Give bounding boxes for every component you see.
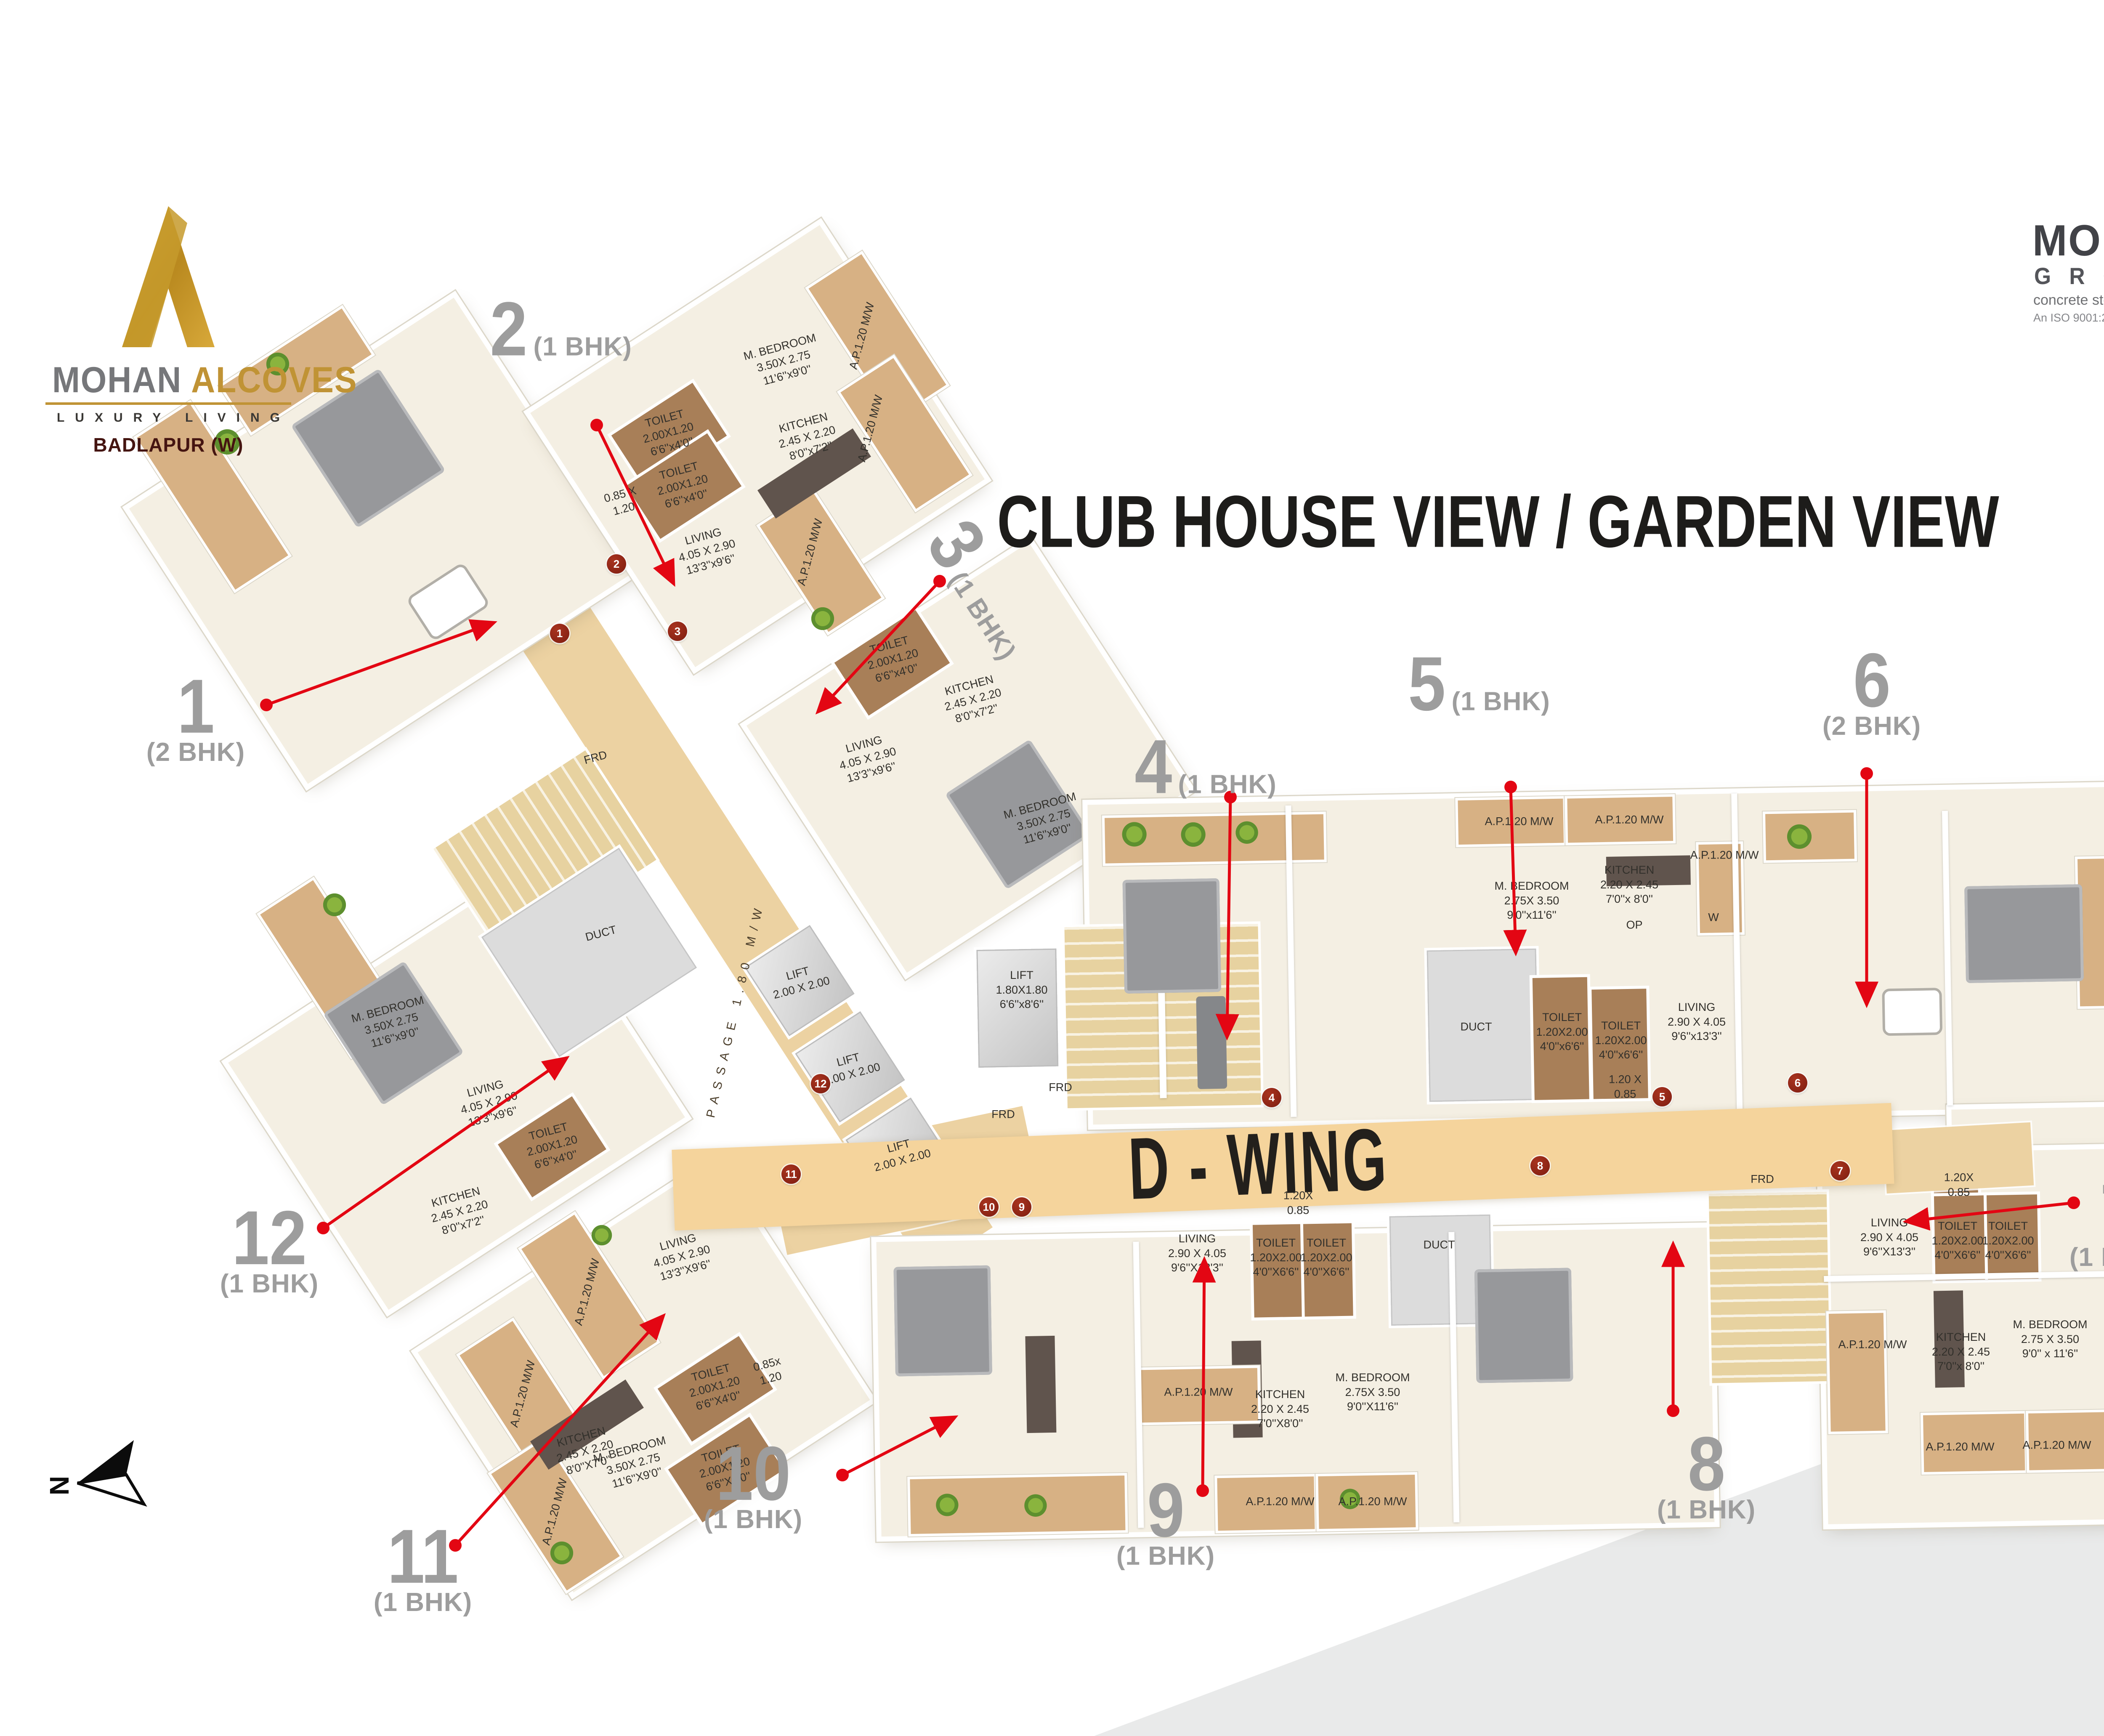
room-label: M. BEDROOM 2.75 X 3.50 9'0'' x 11'6'' xyxy=(2013,1317,2087,1361)
page-title: CLUB HOUSE VIEW / GARDEN VIEW xyxy=(997,485,1999,559)
unit-callout-4: 4(1 BHK) xyxy=(1132,735,1277,798)
sofa-furniture xyxy=(1196,996,1227,1089)
bed-furniture xyxy=(893,1265,992,1377)
unit-callout-number: 11 xyxy=(387,1525,458,1588)
group-word-mohan: MOHAN xyxy=(2032,219,2104,263)
unit-callout-8: 8(1 BHK) xyxy=(1657,1433,1756,1523)
unit-entrance-marker-5: 5 xyxy=(1652,1087,1672,1106)
room-label: LIVING 2.90 X 4.05 9'6''X13'3'' xyxy=(1860,1215,1918,1259)
bed-furniture xyxy=(1123,878,1222,994)
room-label: A.P.1.20 M/W xyxy=(1690,848,1759,863)
unit-entrance-marker-11: 11 xyxy=(781,1164,801,1184)
room-label: TOILET 1.20X2.00 4'0''x6'6'' xyxy=(1595,1018,1647,1062)
room-label: TOILET 1.20X2.00 4'0''X6'6'' xyxy=(1982,1219,2034,1263)
unit-callout-number: 8 xyxy=(1687,1433,1725,1495)
room-label: A.P.1.20 M/W xyxy=(2022,1438,2091,1453)
room-label: FRD xyxy=(1751,1172,1774,1187)
unit-callout-7: 7(1 BHK) xyxy=(2069,1180,2104,1271)
unit-callout-number: 6 xyxy=(1853,649,1890,712)
d-wing-banner-label: D - WING xyxy=(1127,1115,1390,1213)
alcoves-tagline: LUXURY LIVING xyxy=(42,412,295,424)
floor-plan-page: { "title": "CLUB HOUSE VIEW / GARDEN VIE… xyxy=(0,0,2104,1736)
unit-callout-number: 2 xyxy=(490,298,527,360)
unit-entrance-marker-4: 4 xyxy=(1262,1088,1281,1107)
unit-callout-bhk: (1 BHK) xyxy=(1451,688,1550,715)
room-label: DUCT xyxy=(1461,1020,1492,1034)
unit-entrance-marker-2: 2 xyxy=(607,554,626,574)
group-iso-line: An ISO 9001:2008 & ISO 14001:2004 Compan… xyxy=(2033,312,2104,324)
unit-entrance-marker-6: 6 xyxy=(1788,1073,1807,1093)
unit-entrance-marker-9: 9 xyxy=(1012,1197,1031,1217)
unit-callout-12: 12(1 BHK) xyxy=(220,1207,319,1297)
room-label: 1.20X 0.85 xyxy=(1283,1188,1313,1217)
unit-callout-1: 1(2 BHK) xyxy=(146,675,245,766)
room-label: TOILET 1.20X2.00 4'0''X6'6'' xyxy=(1931,1219,1983,1263)
room-label: FRD xyxy=(991,1107,1015,1122)
unit-callout-10: 10(1 BHK) xyxy=(704,1442,802,1533)
alcoves-gold-a-icon xyxy=(42,198,295,358)
bed-furniture xyxy=(1474,1268,1573,1383)
room-label: W xyxy=(1708,910,1719,925)
mohan-alcoves-logo: MOHAN ALCOVES LUXURY LIVING BADLAPUR (W) xyxy=(42,198,295,360)
unit-callout-11: 11(1 BHK) xyxy=(374,1525,472,1616)
room-label: LIVING 2.90 X 4.05 9'6''X13'3'' xyxy=(1168,1231,1226,1275)
north-indicator: N xyxy=(38,1422,177,1534)
unit-callout-number: 10 xyxy=(716,1442,791,1505)
unit-entrance-marker-8: 8 xyxy=(1530,1156,1550,1175)
unit-callout-number: 5 xyxy=(1408,652,1445,715)
room-label: LIFT 1.80X1.80 6'6''x8'6'' xyxy=(996,968,1047,1012)
room-label: A.P.1.20 M/W xyxy=(1246,1494,1314,1509)
alcoves-location: BADLAPUR (W) xyxy=(42,435,295,455)
room-label: 1.20X 0.85 xyxy=(1944,1170,1974,1199)
unit-callout-9: 9(1 BHK) xyxy=(1116,1479,1215,1570)
room-label: TOILET 1.20X2.00 4'0''x6'6'' xyxy=(1536,1010,1588,1054)
room-label: A.P.1.20 M/W xyxy=(1595,813,1663,827)
room-label: A.P.1.20 M/W xyxy=(1164,1385,1233,1400)
alcoves-word-mohan: MOHAN xyxy=(52,360,182,400)
unit-callout-number: 12 xyxy=(232,1207,307,1269)
unit-callout-number: 7 xyxy=(2100,1180,2104,1243)
room-label: M. BEDROOM 2.75X 3.50 9'0''X11'6'' xyxy=(1335,1370,1410,1414)
room-label: TOILET 1.20X2.00 4'0''X6'6'' xyxy=(1300,1236,1352,1279)
unit-entrance-marker-10: 10 xyxy=(979,1197,999,1217)
room-label: A.P.1.20 M/W xyxy=(1838,1337,1907,1352)
alcoves-wordmark: MOHAN ALCOVES xyxy=(52,362,284,398)
room-label: KITCHEN 2.20 X 2.45 7'0''X8'0'' xyxy=(1251,1387,1309,1431)
kitchen-platform xyxy=(1025,1336,1056,1433)
unit-entrance-marker-12: 12 xyxy=(811,1074,830,1093)
dining-table xyxy=(1882,988,1942,1036)
room-label: A.P.1.20 M/W xyxy=(1926,1440,1994,1454)
unit-entrance-marker-7: 7 xyxy=(1830,1161,1850,1180)
room-label: A.P.1.20 M/W xyxy=(1338,1494,1407,1509)
alcoves-gold-rule xyxy=(45,402,291,405)
unit-entrance-marker-1: 1 xyxy=(550,624,569,643)
alcoves-word-alcoves: ALCOVES xyxy=(191,360,357,400)
unit-entrance-marker-3: 3 xyxy=(668,622,687,641)
room-label: 1.20 X 0.85 xyxy=(1609,1072,1642,1101)
group-word-group: GROUP xyxy=(2034,264,2104,288)
unit-callout-number: 9 xyxy=(1147,1479,1184,1542)
bed-furniture xyxy=(1964,884,2084,983)
group-tagline: concrete steps to the future xyxy=(2033,293,2104,307)
staircase-right xyxy=(1709,1192,1830,1383)
room-label: DUCT xyxy=(1424,1238,1455,1252)
room-label: A.P.1.20 M/W xyxy=(1485,814,1553,829)
unit-callout-bhk: (1 BHK) xyxy=(1178,771,1276,798)
unit-callout-bhk: (1 BHK) xyxy=(533,333,632,361)
room-label: LIVING 2.90 X 4.05 9'6''x13'3'' xyxy=(1668,1000,1726,1044)
wing-right xyxy=(0,0,2104,1736)
unit-callout-number: 1 xyxy=(177,675,214,738)
unit-callout-number: 4 xyxy=(1134,735,1172,798)
room-label: KITCHEN 2.20 X 2.45 7'0''x 8'0'' xyxy=(1600,863,1658,907)
unit-callout-2: 2(1 BHK) xyxy=(487,298,632,360)
unit-callout-5: 5(1 BHK) xyxy=(1405,652,1550,715)
north-label: N xyxy=(46,1476,73,1495)
balcony xyxy=(1829,1313,1886,1432)
room-label: TOILET 1.20X2.00 4'0''X6'6'' xyxy=(1250,1236,1302,1279)
room-label: OP xyxy=(1626,918,1642,933)
unit-callout-6: 6(2 BHK) xyxy=(1822,649,1921,740)
room-label: KITCHEN 2.20 X 2.45 7'0''x 8'0'' xyxy=(1932,1330,1990,1374)
room-label: M. BEDROOM 2.75X 3.50 9'0''x11'6'' xyxy=(1494,879,1569,922)
unit-callout-bhk: (1 BHK) xyxy=(2069,1244,2104,1271)
room-label: FRD xyxy=(1049,1080,1072,1095)
